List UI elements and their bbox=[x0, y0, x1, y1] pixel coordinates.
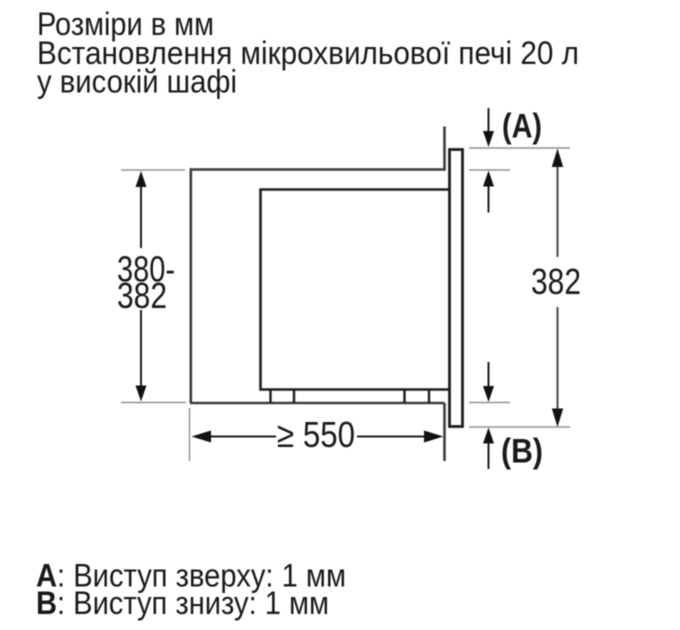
svg-text:B: Виступ знизу: 1 мм: B: Виступ знизу: 1 мм bbox=[36, 585, 329, 621]
svg-text:(B): (B) bbox=[501, 433, 543, 471]
svg-text:(A): (A) bbox=[502, 108, 542, 146]
svg-text:≥ 550: ≥ 550 bbox=[277, 414, 355, 455]
svg-text:382: 382 bbox=[117, 275, 167, 316]
svg-text:382: 382 bbox=[531, 261, 581, 302]
svg-text:у високій шафі: у високій шафі bbox=[37, 64, 237, 100]
